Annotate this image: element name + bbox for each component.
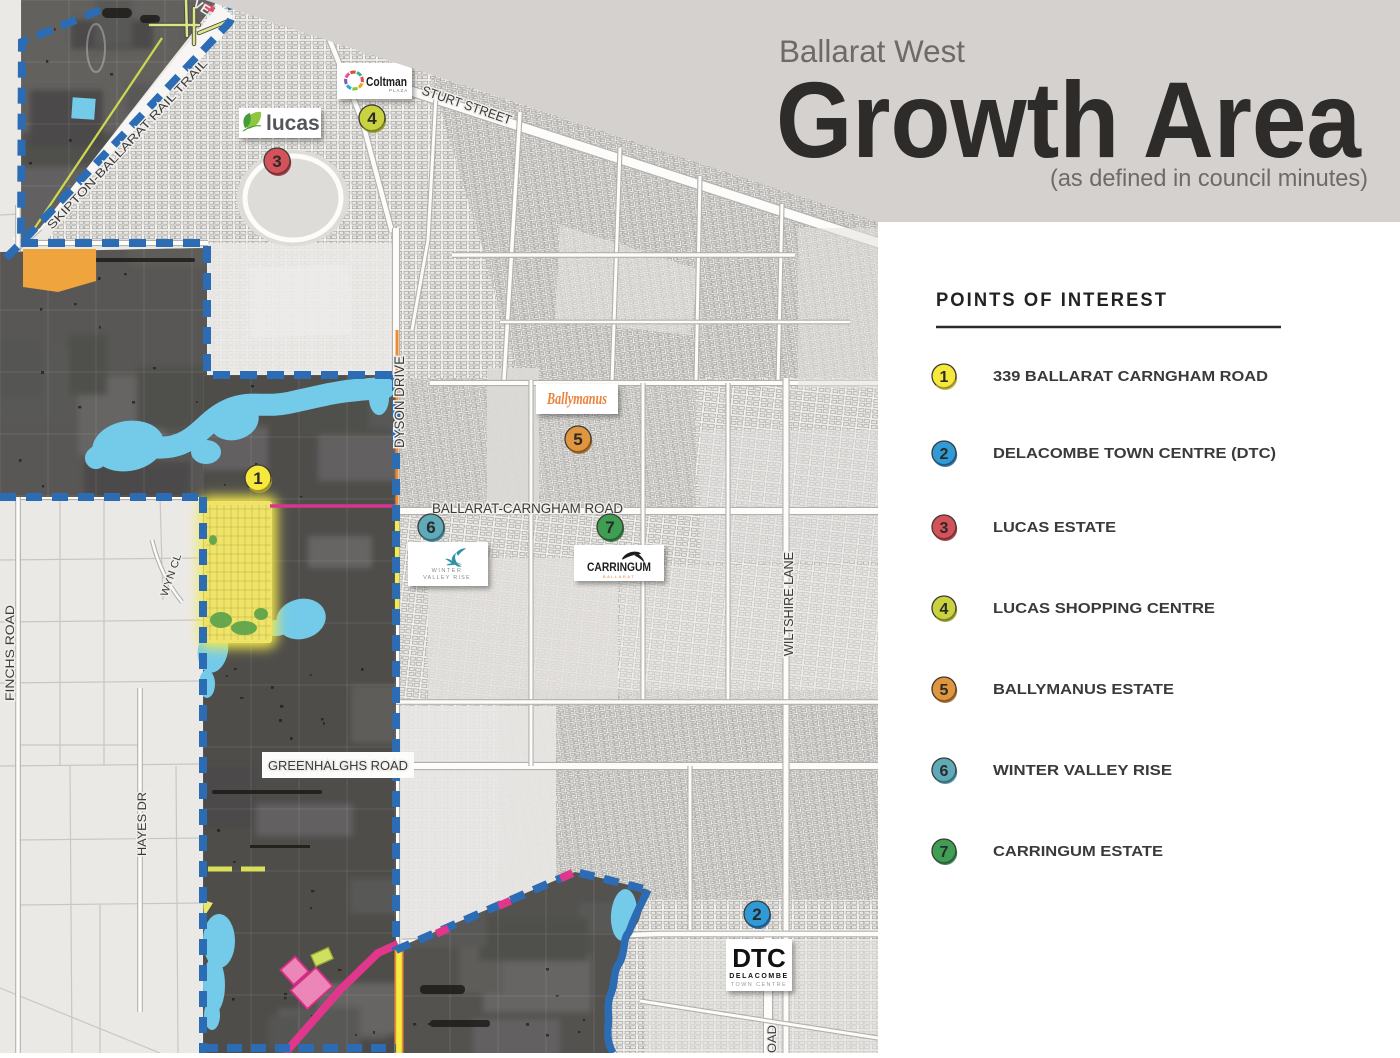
svg-text:HAYES DR: HAYES DR: [137, 792, 149, 856]
svg-text:1: 1: [940, 369, 949, 386]
svg-text:BALLARAT-CARNGHAM ROAD: BALLARAT-CARNGHAM ROAD: [432, 500, 623, 516]
svg-text:TOWN CENTRE: TOWN CENTRE: [731, 982, 787, 988]
svg-text:DYSON DRIVE: DYSON DRIVE: [392, 356, 407, 448]
svg-text:POINTS OF INTEREST: POINTS OF INTEREST: [936, 289, 1168, 311]
svg-text:BALLYMANUS ESTATE: BALLYMANUS ESTATE: [993, 682, 1174, 698]
svg-text:6: 6: [426, 518, 435, 537]
svg-text:Coltman: Coltman: [366, 75, 407, 89]
svg-text:VALLEY RISE: VALLEY RISE: [423, 575, 471, 581]
svg-text:5: 5: [940, 682, 949, 699]
svg-text:CARRINGUM: CARRINGUM: [587, 562, 651, 574]
svg-text:DELACOMBE: DELACOMBE: [729, 973, 789, 980]
svg-text:BALLARAT: BALLARAT: [603, 574, 635, 579]
svg-text:OAD: OAD: [765, 1025, 779, 1053]
svg-text:LUCAS SHOPPING CENTRE: LUCAS SHOPPING CENTRE: [993, 601, 1215, 617]
svg-text:WINTER VALLEY RISE: WINTER VALLEY RISE: [993, 763, 1172, 779]
svg-text:2: 2: [940, 446, 949, 463]
svg-text:CARRINGUM ESTATE: CARRINGUM ESTATE: [993, 844, 1163, 860]
svg-text:FINCHS ROAD: FINCHS ROAD: [5, 605, 17, 701]
svg-text:lucas: lucas: [266, 112, 320, 135]
svg-text:1: 1: [253, 469, 262, 488]
svg-text:7: 7: [605, 518, 614, 537]
svg-text:339 BALLARAT CARNGHAM ROAD: 339 BALLARAT CARNGHAM ROAD: [993, 369, 1268, 385]
svg-text:DELACOMBE TOWN CENTRE (DTC): DELACOMBE TOWN CENTRE (DTC): [993, 446, 1276, 462]
svg-text:DTC: DTC: [732, 943, 786, 973]
svg-text:PLAZA: PLAZA: [389, 88, 408, 93]
svg-text:3: 3: [940, 520, 949, 537]
svg-text:WILTSHIRE LANE: WILTSHIRE LANE: [782, 552, 796, 656]
svg-text:4: 4: [367, 109, 377, 128]
svg-text:3: 3: [272, 152, 281, 171]
svg-text:WINTER: WINTER: [432, 568, 463, 574]
svg-text:2: 2: [752, 905, 761, 924]
svg-text:7: 7: [940, 844, 949, 861]
svg-text:5: 5: [573, 430, 582, 449]
svg-text:6: 6: [940, 763, 949, 780]
svg-text:Ballymanus: Ballymanus: [546, 389, 607, 408]
svg-text:LUCAS ESTATE: LUCAS ESTATE: [993, 520, 1116, 536]
svg-text:GREENHALGHS ROAD: GREENHALGHS ROAD: [268, 759, 408, 773]
svg-text:(as defined in council minutes: (as defined in council minutes): [1050, 165, 1368, 192]
svg-text:Growth Area: Growth Area: [776, 59, 1362, 180]
svg-text:4: 4: [940, 601, 949, 618]
